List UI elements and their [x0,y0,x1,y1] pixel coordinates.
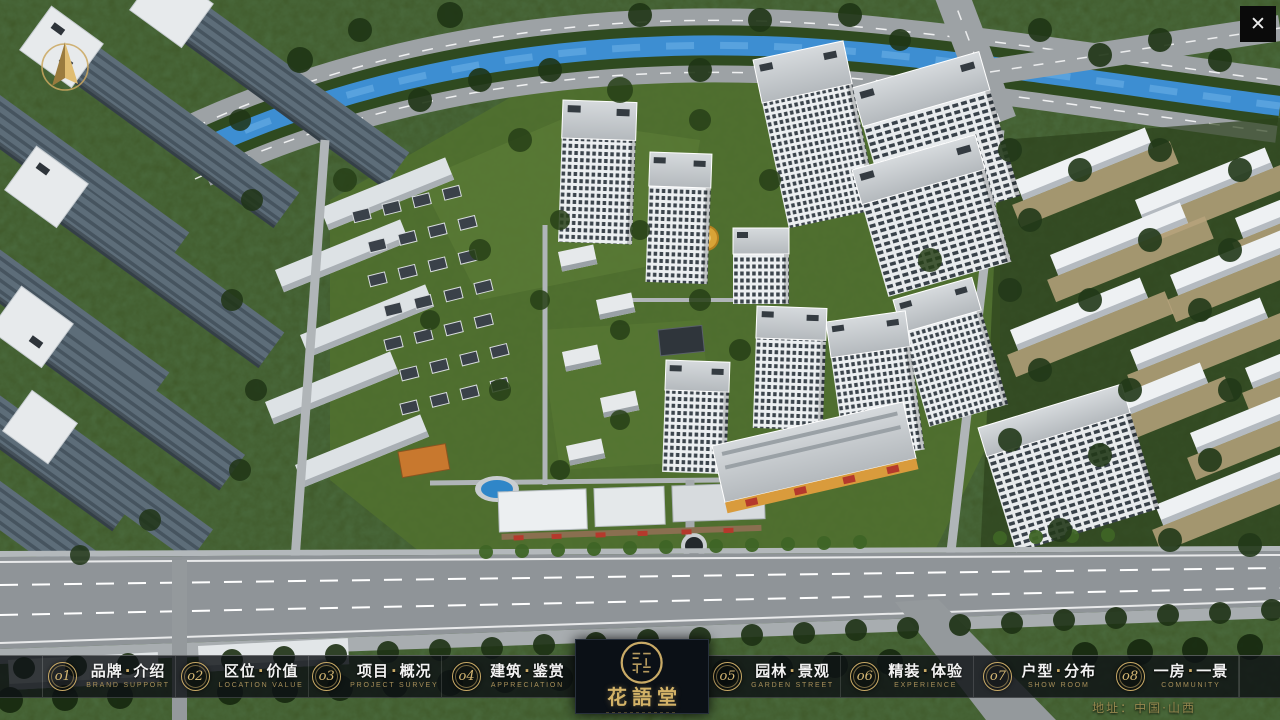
label-part: 项目 [357,662,389,680]
label-dot: · [920,662,931,680]
label-part: 区位 [224,662,256,680]
sales-presentation-app: ✕ o1 品牌·介绍 BRAND SUPPORT o2 区位·价值 LOCATI… [0,0,1280,720]
nav-number: o2 [187,669,203,684]
nav-item-text: 园林·景观 GARDEN STREET [751,664,834,689]
nav-item-label: 园林·景观 [755,664,830,680]
label-part: 鉴赏 [533,662,565,680]
close-icon: ✕ [1250,13,1266,36]
label-part: 分布 [1064,662,1096,680]
nav-item-community[interactable]: o8 一房·一景 COMMUNITY [1106,656,1239,697]
nav-item-text: 建筑·鉴赏 APPRECIATION [490,664,565,689]
nav-item-sublabel: GARDEN STREET [751,682,834,689]
nav-item-interior[interactable]: o6 精装·体验 EXPERIENCE [841,656,974,697]
label-dot: · [787,662,798,680]
nav-item-sublabel: LOCATION VALUE [219,682,304,689]
label-part: 介绍 [133,662,165,680]
nav-number: o8 [1122,669,1138,684]
project-logo-panel[interactable]: 花語堂 [575,639,709,714]
navbar-left-spacer [0,656,43,697]
nav-number: o1 [55,669,71,684]
nav-number-badge: o5 [713,662,742,691]
nav-number-badge: o8 [1116,662,1145,691]
label-part: 户型 [1021,662,1053,680]
nav-item-garden[interactable]: o5 园林·景观 GARDEN STREET [708,656,841,697]
label-part: 价值 [267,662,299,680]
nav-number: o4 [459,669,475,684]
nav-item-sublabel: COMMUNITY [1161,682,1220,689]
nav-item-sublabel: BRAND SUPPORT [86,682,170,689]
project-name: 花語堂 [607,687,682,707]
nav-number: o6 [857,669,873,684]
compass-icon [38,36,94,92]
label-dot: · [256,662,267,680]
nav-item-sublabel: APPRECIATION [491,682,564,689]
label-part: 精装 [888,662,920,680]
label-dot: · [522,662,533,680]
nav-item-sublabel: EXPERIENCE [894,682,957,689]
nav-item-brand[interactable]: o1 品牌·介绍 BRAND SUPPORT [43,656,176,697]
label-dot: · [1186,662,1197,680]
nav-number: o3 [319,669,335,684]
label-dot: · [1053,662,1064,680]
nav-item-label: 精装·体验 [888,664,963,680]
nav-number-badge: o4 [452,662,481,691]
nav-item-text: 一房·一景 COMMUNITY [1154,664,1229,689]
nav-item-sublabel: SHOW ROOM [1028,682,1090,689]
label-part: 概况 [400,662,432,680]
nav-item-label: 品牌·介绍 [91,664,166,680]
project-seal-icon [619,640,664,685]
nav-item-location[interactable]: o2 区位·价值 LOCATION VALUE [176,656,309,697]
nav-item-text: 项目·概况 PROJECT SURVEY [350,664,438,689]
label-part: 景观 [798,662,830,680]
label-part: 一房 [1154,662,1186,680]
nav-number-badge: o1 [48,662,77,691]
nav-item-floorplans[interactable]: o7 户型·分布 SHOW ROOM [974,656,1106,697]
nav-number: o7 [990,669,1006,684]
label-part: 建筑 [490,662,522,680]
nav-item-label: 户型·分布 [1021,664,1096,680]
nav-item-label: 一房·一景 [1154,664,1229,680]
logo-caption-line [606,712,678,713]
nav-item-project[interactable]: o3 项目·概况 PROJECT SURVEY [309,656,442,697]
nav-number-badge: o7 [983,662,1012,691]
label-part: 体验 [931,662,963,680]
nav-number-badge: o3 [312,662,341,691]
nav-item-text: 精装·体验 EXPERIENCE [888,664,963,689]
label-part: 一景 [1196,662,1228,680]
nav-number-badge: o2 [181,662,210,691]
nav-item-label: 区位·价值 [224,664,299,680]
label-part: 品牌 [91,662,123,680]
masterplan-3d-view[interactable] [0,0,1280,720]
label-dot: · [123,662,134,680]
nav-number-badge: o6 [850,662,879,691]
nav-item-text: 品牌·介绍 BRAND SUPPORT [86,664,170,689]
nav-number: o5 [720,669,736,684]
label-part: 园林 [755,662,787,680]
close-button[interactable]: ✕ [1240,6,1276,42]
nav-item-label: 项目·概况 [357,664,432,680]
nav-item-label: 建筑·鉴赏 [490,664,565,680]
project-address: 地址：中国·山西 [1092,699,1196,716]
label-dot: · [389,662,400,680]
nav-item-sublabel: PROJECT SURVEY [350,682,438,689]
nav-item-text: 户型·分布 SHOW ROOM [1021,664,1096,689]
navbar-right-spacer [1239,656,1280,697]
nav-item-architecture[interactable]: o4 建筑·鉴赏 APPRECIATION [442,656,575,697]
nav-item-text: 区位·价值 LOCATION VALUE [219,664,304,689]
